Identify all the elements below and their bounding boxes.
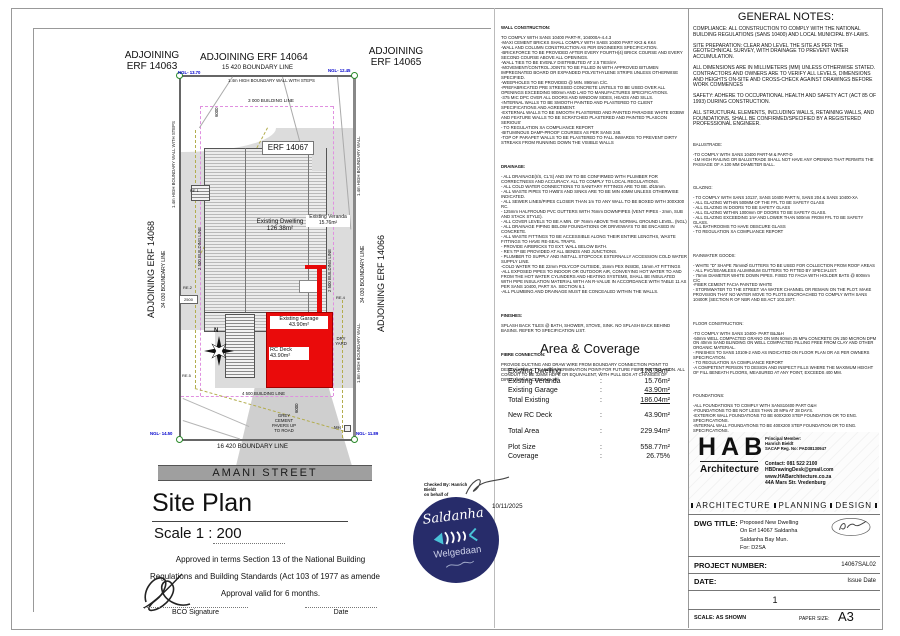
rainwater-body: - WHITE "D" SHAPE 75mmØ GUTTERS TO BE US…	[693, 264, 878, 303]
balustrade-body: -TO COMPLY WITH SANS 10400 PART-M & PART…	[693, 153, 878, 168]
service-planning: PLANNING	[779, 501, 828, 510]
stamp-title: Saldanha	[413, 504, 497, 529]
area-row-value: 186.04m²	[608, 397, 670, 404]
plan-scale-dots	[213, 543, 285, 544]
drawing-sheet: { "colors": { "accent_red": "#ea0b0b", "…	[0, 0, 900, 636]
inner-left-border	[33, 28, 34, 612]
paper-size-label: PAPER SIZE:	[799, 616, 829, 622]
beacon-bottom-left	[176, 436, 183, 443]
building-line-top	[200, 106, 333, 107]
services-bar: ARCHITECTURE PLANNING DESIGN	[688, 501, 880, 510]
adjoining-erf-14066: ADJOINING ERF 14066	[376, 235, 386, 332]
building-line-3000-label: 3 000 BUILDING LINE	[248, 98, 294, 103]
boundary-left-label: 34 030 BOUNDARY LINE	[162, 251, 168, 308]
adjoining-erf-14064: ADJOINING ERF 14064	[200, 52, 308, 63]
re5-marker: RE.5	[182, 373, 191, 378]
dwg-title-label: DWG TITLE:	[694, 519, 738, 528]
approval-date-line	[305, 607, 377, 608]
colon: :	[594, 412, 608, 419]
dim-6000-top: 6000	[214, 107, 219, 117]
area-row-label: Total Existing	[508, 397, 594, 404]
service-design: DESIGN	[835, 501, 872, 510]
area-row-label: Plot Size	[508, 444, 594, 451]
general-notes-paragraph: COMPLIANCE: ALL CONSTRUCTION TO COMPLY W…	[693, 27, 878, 39]
roof-detail-box	[299, 280, 318, 293]
deck-red-connector	[317, 269, 322, 313]
area-row-label: Existing Veranda	[508, 378, 594, 385]
hab-logo-underline	[700, 461, 758, 462]
wall-right-label: 1.4m HIGH BOUNDARY WALL	[356, 136, 361, 196]
adjoining-erf-14068: ADJOINING ERF 14068	[146, 221, 156, 318]
checked-date: 10/11/2025	[492, 503, 523, 510]
roof-notch	[312, 147, 326, 171]
building-line-bottom	[181, 396, 333, 397]
beacon-bottom-right	[351, 436, 358, 443]
titleblock-divider	[688, 590, 880, 591]
table-row: Coverage:26.75%	[508, 453, 678, 463]
glazing-body: - TO COMPLY WITH SANS 10137, SANS 10400 …	[693, 196, 878, 235]
boundary-top-label: 15 420 BOUNDARY LINE	[222, 64, 293, 71]
garage-label: Existing Garage 43.90m²	[270, 316, 328, 329]
veranda-red-strip	[305, 265, 326, 269]
area-row-label: Existing Garage	[508, 387, 594, 394]
table-row: New RC Deck:43.90m²	[508, 412, 678, 422]
wall-construction-heading: WALL CONSTRUCTION:	[501, 25, 687, 30]
adjoining-erf-14065: ADJOINING ERF 14065	[352, 46, 440, 68]
column-divider-right	[688, 8, 689, 628]
ngl-top-right: NGL- 12.45	[328, 68, 350, 73]
general-notes-paragraph: ALL STRUCTURAL ELEMENTS, INCLUDING WALLS…	[693, 111, 878, 128]
foundations-heading: FOUNDATIONS:	[693, 394, 878, 399]
general-notes-paragraph: SAFETY: ADHERE TO OCCUPATIONAL HEALTH AN…	[693, 94, 878, 106]
manhole-marker	[344, 425, 351, 432]
finishes-body: SPLASH BACK TILES @ BATH, SHOWER, STOVE,…	[501, 323, 687, 333]
building-line-right	[333, 106, 334, 396]
service-architecture: ARCHITECTURE	[696, 501, 771, 510]
area-row-label: Coverage	[508, 453, 594, 460]
area-row-value: 43.90m²	[608, 412, 670, 419]
paper-size-value: A3	[838, 609, 854, 624]
date-label: DATE:	[694, 577, 716, 586]
colon: :	[594, 387, 608, 394]
square-bullet-icon	[691, 503, 693, 508]
building-line-4500-label: 4 500 BUILDING LINE	[242, 391, 285, 396]
re2-marker: RE.2	[183, 285, 192, 290]
ngl-bottom-left: NGL- 14.50	[150, 431, 172, 436]
area-row-value: 558.77m²	[608, 444, 670, 451]
project-number-value: 14067SAL02	[790, 562, 876, 568]
colon: :	[594, 397, 608, 404]
area-coverage-heading: Area & Coverage	[505, 341, 675, 356]
approval-line-1: Approved in terms Section 13 of the Nati…	[148, 555, 393, 565]
area-row-value: 229.94m²	[608, 428, 670, 435]
dwg-title-value: Proposed New Dwelling On Erf 14067 Salda…	[740, 519, 830, 553]
area-row-value: 15.76m²	[608, 378, 670, 385]
titleblock-divider	[688, 514, 880, 515]
project-number-label: PROJECT NUMBER:	[694, 561, 767, 570]
table-row: Total Existing:186.04m²	[508, 397, 678, 407]
colon: :	[594, 444, 608, 451]
colon: :	[594, 378, 608, 385]
bco-signature-label: BCO Signature	[143, 609, 248, 617]
veranda-label: Existing Veranda 15.76m²	[306, 215, 350, 227]
beacon-top-right	[351, 72, 358, 79]
colon: :	[594, 428, 608, 435]
scale-note: SCALE: AS SHOWN	[694, 615, 746, 621]
finishes-heading: FINISHES:	[501, 313, 687, 318]
boundary-top	[180, 75, 355, 77]
saldanha-stamp: Saldanha Welgedaan	[413, 497, 499, 583]
rainwater-heading: RAINWATER GOODS:	[693, 254, 878, 259]
titleblock-divider	[688, 573, 880, 574]
dim-2500-box: 2500	[179, 295, 198, 304]
adjoining-erf-14063: ADJOINING ERF 14063	[112, 50, 192, 72]
street-name: AMANI STREET	[200, 467, 330, 479]
boundary-bottom	[180, 439, 355, 441]
floor-heading: FLOOR CONSTRUCTION:	[693, 322, 878, 327]
plan-title-rule	[152, 521, 348, 522]
compass-icon	[204, 336, 234, 366]
rc-deck-label: RC Deck 43.90m²	[269, 347, 309, 360]
table-row: Total Area:229.94m²	[508, 428, 678, 438]
area-row-label: Total Area	[508, 428, 594, 435]
general-notes-heading: GENERAL NOTES:	[692, 11, 880, 23]
construction-notes: WALL CONSTRUCTION: TO COMPLY WITH SANS 1…	[501, 15, 687, 396]
general-notes: COMPLIANCE: ALL CONSTRUCTION TO COMPLY W…	[693, 27, 878, 467]
balustrade-heading: BALUSTRADE:	[693, 143, 878, 148]
hab-logo: HAB	[698, 433, 767, 462]
boundary-left	[179, 75, 181, 440]
ngl-top-left: NGL- 13.70	[178, 70, 200, 75]
sheet-number: 1	[740, 595, 810, 605]
floor-body: -TO COMPLY WITH SANS 10400- PART B&J&H -…	[693, 332, 878, 376]
table-row: Existing Dwelling:126.38m²	[508, 368, 678, 378]
area-row-value: 126.38m²	[608, 368, 670, 375]
wall-left-label: 1.4m HIGH BOUNDARY WALL WITH STEPS	[171, 121, 176, 208]
approval-date-label: Date	[305, 609, 377, 617]
area-row-label: New RC Deck	[508, 412, 594, 419]
square-bullet-icon	[774, 503, 776, 508]
architect-signature	[830, 516, 872, 538]
area-row-value: 43.90m²	[608, 387, 670, 394]
titleblock-divider	[688, 556, 880, 557]
boundary-bottom-label: 16 420 BOUNDARY LINE	[217, 443, 288, 450]
plan-title: Site Plan	[152, 489, 252, 518]
boundary-right	[353, 75, 356, 440]
wall-top-label: 1.4m HIGH BOUNDARY WALL WITH STEPS	[228, 78, 315, 83]
wall-right-lower-label: 1.8m HIGH BOUNDARY WALL	[356, 323, 361, 383]
hab-logo-sub: Architecture	[700, 464, 759, 475]
table-row: Existing Veranda:15.76m²	[508, 378, 678, 388]
boundary-right-label: 34 030 BOUNDARY LINE	[361, 246, 367, 303]
bco-signature-line	[143, 607, 248, 608]
dry-yard-label: DRY YARD	[330, 336, 352, 346]
colon: :	[594, 453, 608, 460]
inner-top-border	[33, 28, 491, 29]
drainage-heading: DRAINAGE:	[501, 164, 687, 169]
manhole-label: MH	[334, 425, 341, 430]
building-line-2500-right: 2 500 BUILDING LINE	[327, 249, 332, 292]
sewer-line-vertical-left	[195, 130, 196, 388]
area-row-value: 26.75%	[608, 453, 670, 460]
principal-member: Principal Member: Hanrich Bieldt SACAP R…	[765, 436, 877, 451]
building-line-2500-left: 2 500 BUILDING LINE	[197, 227, 202, 270]
wall-construction-body: TO COMPLY WITH SANS 10400 PART-R, 104000…	[501, 35, 687, 145]
square-bullet-icon	[830, 503, 832, 508]
area-coverage-table: Existing Dwelling:126.38m² Existing Vera…	[508, 368, 678, 463]
area-row-label: Existing Dwelling	[508, 368, 594, 375]
general-notes-paragraph: ALL DIMENSIONS ARE IN MILLIMETERS (MM) U…	[693, 66, 878, 89]
dim-6000-bottom: 6000	[294, 403, 299, 413]
square-bullet-icon	[875, 503, 877, 508]
re4-marker: RE.4	[336, 295, 345, 300]
colon: :	[594, 368, 608, 375]
sewer-line-vertical-right	[342, 300, 343, 438]
contact-details: Contact: 081 522 2100 HBDrawingDesk@gmai…	[765, 461, 877, 486]
glazing-heading: GLAZING:	[693, 186, 878, 191]
drainage-body: - ALL DRAINAGE(I/S, CL'S) AND SW TO BE C…	[501, 174, 687, 294]
erf-14067-label: ERF 14067	[262, 141, 314, 155]
date-value: Issue Date	[790, 578, 876, 584]
re1-marker: RE.1	[190, 188, 199, 193]
pavers-label: GREY CEMENT PAVERS UP TO ROAD	[262, 413, 306, 433]
north-label: N	[214, 328, 218, 334]
table-row: Existing Garage:43.90m²	[508, 387, 678, 397]
table-row: Plot Size:558.77m²	[508, 444, 678, 454]
plan-scale: Scale 1 : 200	[154, 525, 242, 542]
stamp-flourish	[444, 559, 477, 571]
general-notes-paragraph: SITE PREPARATION: CLEAR AND LEVEL THE SI…	[693, 44, 878, 61]
ngl-bottom-right: NGL- 11.89	[356, 431, 378, 436]
